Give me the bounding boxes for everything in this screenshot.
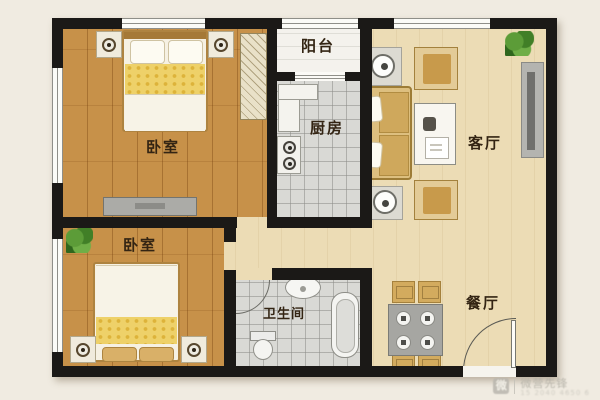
bed2-pillow-right	[139, 347, 174, 362]
bed1-blanket	[125, 64, 205, 94]
room-label-bathroom: 卫生间	[244, 308, 324, 321]
wall-bedroom1-right	[267, 18, 277, 228]
wall-bathroom-left	[224, 270, 236, 370]
kitchen-counter-horizontal	[278, 84, 318, 100]
lamp-icon	[102, 38, 116, 52]
plant-icon	[66, 227, 93, 253]
wall-bathroom-right	[360, 268, 372, 377]
window-balcony-top	[282, 18, 358, 29]
dresser-tv-cabinet	[103, 197, 197, 216]
window-bedroom1-left	[52, 68, 63, 183]
toilet-bowl	[253, 339, 273, 360]
nightstand-bed2-left	[70, 336, 96, 363]
room-label-dining: 餐厅	[443, 296, 523, 311]
wall-left-1	[52, 18, 63, 68]
entry-door-leaf	[511, 320, 516, 368]
nightstand-bed1-right	[208, 31, 234, 58]
plate-icon	[396, 311, 411, 326]
room-label-living: 客厅	[445, 136, 525, 151]
burner-icon	[283, 141, 296, 154]
burner-icon	[283, 157, 296, 170]
wall-balcony-divider-left	[267, 72, 295, 81]
floorplan-screenshot: 卧室 卧室 阳台 厨房 客厅 餐厅 卫生间 微 微营先锋 15 2040 465…	[0, 0, 600, 400]
dining-chair	[418, 281, 441, 303]
stove	[277, 136, 301, 174]
side-table-bottom	[368, 186, 403, 220]
sofa-cushion	[379, 135, 409, 176]
watermark-logo-icon: 微	[493, 378, 509, 394]
lamp-icon	[214, 38, 228, 52]
floorplan: 卧室 卧室 阳台 厨房 客厅 餐厅 卫生间	[0, 0, 600, 400]
room-label-balcony: 阳台	[278, 39, 358, 54]
watermark-subtext: 15 2040 4650 6	[520, 389, 590, 398]
wall-bottom-1	[52, 366, 463, 377]
dining-chair	[392, 281, 415, 303]
wall-bottom-2	[516, 366, 557, 377]
room-label-kitchen: 厨房	[287, 121, 367, 136]
wall-between-bedrooms	[52, 217, 237, 228]
armchair-cushion	[423, 187, 451, 214]
watermark-divider	[514, 378, 515, 394]
entry-door-opening	[463, 366, 516, 377]
plant-icon	[505, 31, 534, 56]
window-bedroom2-left	[52, 239, 63, 352]
armchair-top	[414, 47, 458, 90]
dining-table	[388, 304, 443, 356]
bed1-pillow-left	[130, 40, 165, 64]
wall-balcony-divider-right	[345, 72, 372, 81]
nightstand-bed1-left	[96, 31, 122, 58]
lamp-icon	[76, 343, 90, 357]
armchair-bottom	[414, 180, 458, 220]
bed2-duvet	[96, 265, 177, 318]
room-label-bedroom1: 卧室	[118, 140, 208, 155]
bed-double-bedroom1	[122, 30, 208, 132]
wall-left-2	[52, 183, 63, 239]
plate-icon	[420, 335, 435, 350]
bathroom-door-opening	[236, 268, 272, 280]
wardrobe	[240, 33, 267, 120]
bed2-blanket	[96, 317, 177, 344]
bed2-pillow-left	[102, 347, 137, 362]
window-bedroom1-top	[122, 18, 205, 29]
room-label-bedroom2: 卧室	[95, 238, 185, 253]
bed1-headboard	[124, 32, 206, 39]
coffee-table	[414, 103, 456, 165]
bed-double-bedroom2	[93, 262, 180, 362]
balcony-sliding-window	[295, 72, 345, 81]
bed1-pillow-right	[168, 40, 203, 64]
plate-icon	[420, 311, 435, 326]
nightstand-bed2-right	[181, 336, 207, 363]
wall-bathroom-top	[272, 268, 360, 280]
window-living-top	[394, 18, 490, 29]
wall-kitchen-bottom	[267, 217, 372, 228]
armchair-cushion	[423, 54, 451, 84]
coffee-table-item	[423, 117, 436, 131]
wall-right	[546, 18, 557, 377]
watermark-brand: 微营先锋	[520, 378, 590, 389]
bed1-duvet	[125, 94, 205, 131]
wall-bedroom2-right-stub	[224, 217, 236, 242]
plate-icon	[396, 335, 411, 350]
lamp-icon	[187, 343, 201, 357]
bathtub	[331, 292, 359, 358]
watermark: 微 微营先锋 15 2040 4650 6	[493, 378, 590, 398]
sofa-cushion	[379, 92, 409, 133]
